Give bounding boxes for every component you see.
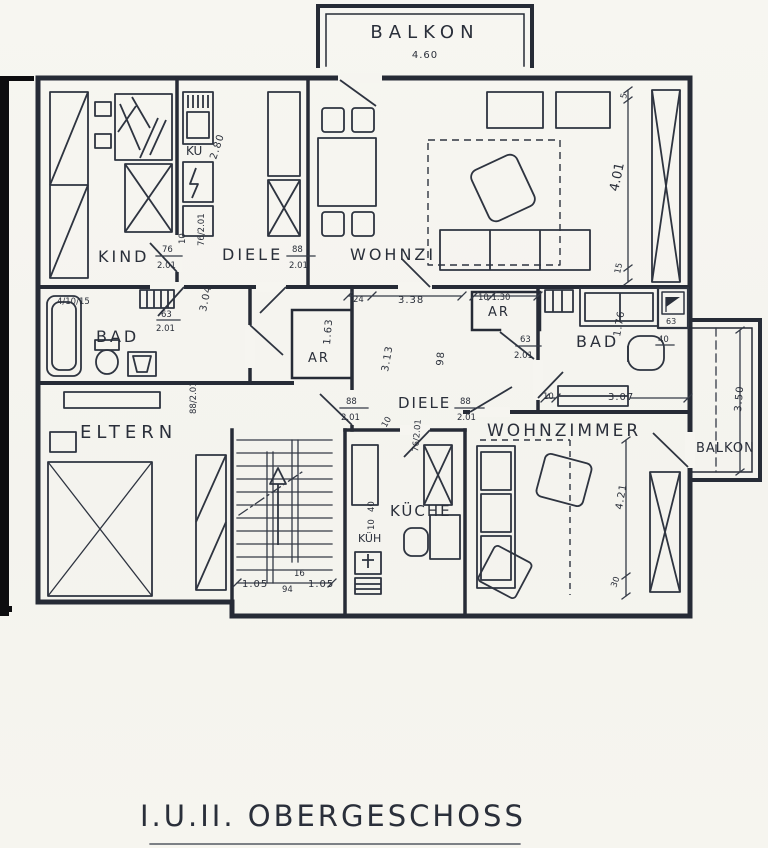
dim-10-right: 10 [543,392,554,402]
dim-ku: 2.80 [208,133,227,161]
label-bad-left: BAD [96,327,139,346]
scan-edge [0,76,34,616]
dim-24: 24 [353,295,364,305]
dim-40-kitchen: 40 [367,501,377,512]
tick-30: 30 [609,575,622,589]
dim-313: 3.13 [380,345,395,373]
dim-diele-right-den: 2.01 [457,413,476,423]
dim-ar-right: 10 1.30 [478,293,510,303]
staircase [237,440,332,583]
dim-diele-left-den: 2.01 [289,261,308,271]
scanned-floor-plan-page: BALKON 4.60 KIND 76 2.01 10 76/2.01 DIEL… [0,0,768,848]
wohnzimmer-furniture [477,386,680,600]
dim-entry-width: 10 [380,415,394,429]
dim-kueche-door: 76/2.01 [411,419,424,452]
dim-kind-door-num: 76 [162,245,173,255]
label-wohnzi-top: WOHNZI [350,245,436,264]
dim-10-kitchen: 10 [367,519,377,530]
dim-kind-door2: 76/2.01 [197,213,207,246]
dim-163: 1.63 [322,318,335,345]
dim-stairs-16: 16 [294,569,305,579]
dim-338: 3.38 [398,295,424,306]
label-shaft: 63 [666,317,676,326]
dim-balkon-top: 4.60 [412,50,438,61]
dim-bad-left-door-num: 63 [161,310,172,320]
title-text: I.U.II. OBERGESCHOSS [140,799,526,833]
dim-ar-right-door-den: 2.01 [514,351,533,361]
label-wohnzimmer: WOHNZIMMER [487,421,641,441]
dim-entry-den: 2.01 [341,413,360,423]
label-kueh: KÜH [358,532,381,545]
tick-15: 15 [613,262,625,275]
dim-kind-door-den: 2.01 [157,261,176,271]
note-bad-left: 4/10/15 [57,297,90,307]
dim-98: 98 [435,351,447,367]
dim-ar-right-door-num: 63 [520,335,531,345]
label-balkon-right: BALKON [696,441,755,456]
floor-plan-drawing: BALKON 4.60 KIND 76 2.01 10 76/2.01 DIEL… [0,0,768,848]
dining-set [318,108,376,236]
dim-stairs-105a: 1.05 [242,579,268,590]
label-ku: KÜ [186,142,202,158]
dim-401: 4.01 [607,161,628,192]
dim-421: 4.21 [614,483,629,511]
label-balkon-top: BALKON [370,22,479,43]
drawing-title: I.U.II. OBERGESCHOSS [140,799,526,844]
dim-diele-right-num: 88 [460,397,471,407]
wohnzi-furniture [428,90,680,282]
dim-diele-left-num: 88 [292,245,303,255]
dim-kind-door-width: 10 [178,233,188,244]
dim-350: 3.50 [733,385,746,412]
label-kind: KIND [98,247,150,266]
balcony-right [692,320,760,480]
dim-bad-left-door-den: 2.01 [156,324,175,334]
dim-40: 40 [658,335,669,345]
dim-eltern-door: 88/2.01 [189,381,199,414]
label-ar-left: AR [308,351,330,366]
label-diele-left: DIELE [222,245,283,264]
dim-stairs-105b: 1.05 [308,579,334,590]
dim-stairs-94: 94 [282,585,293,595]
label-kueche: KÜCHE [390,501,452,520]
dim-176: 1.76 [612,310,627,338]
label-diele-right: DIELE [398,394,451,412]
dim-entry-num: 88 [346,397,357,407]
dim-307: 3.07 [608,392,634,403]
label-eltern: ELTERN [80,422,177,443]
label-ar-right: AR [488,305,510,320]
